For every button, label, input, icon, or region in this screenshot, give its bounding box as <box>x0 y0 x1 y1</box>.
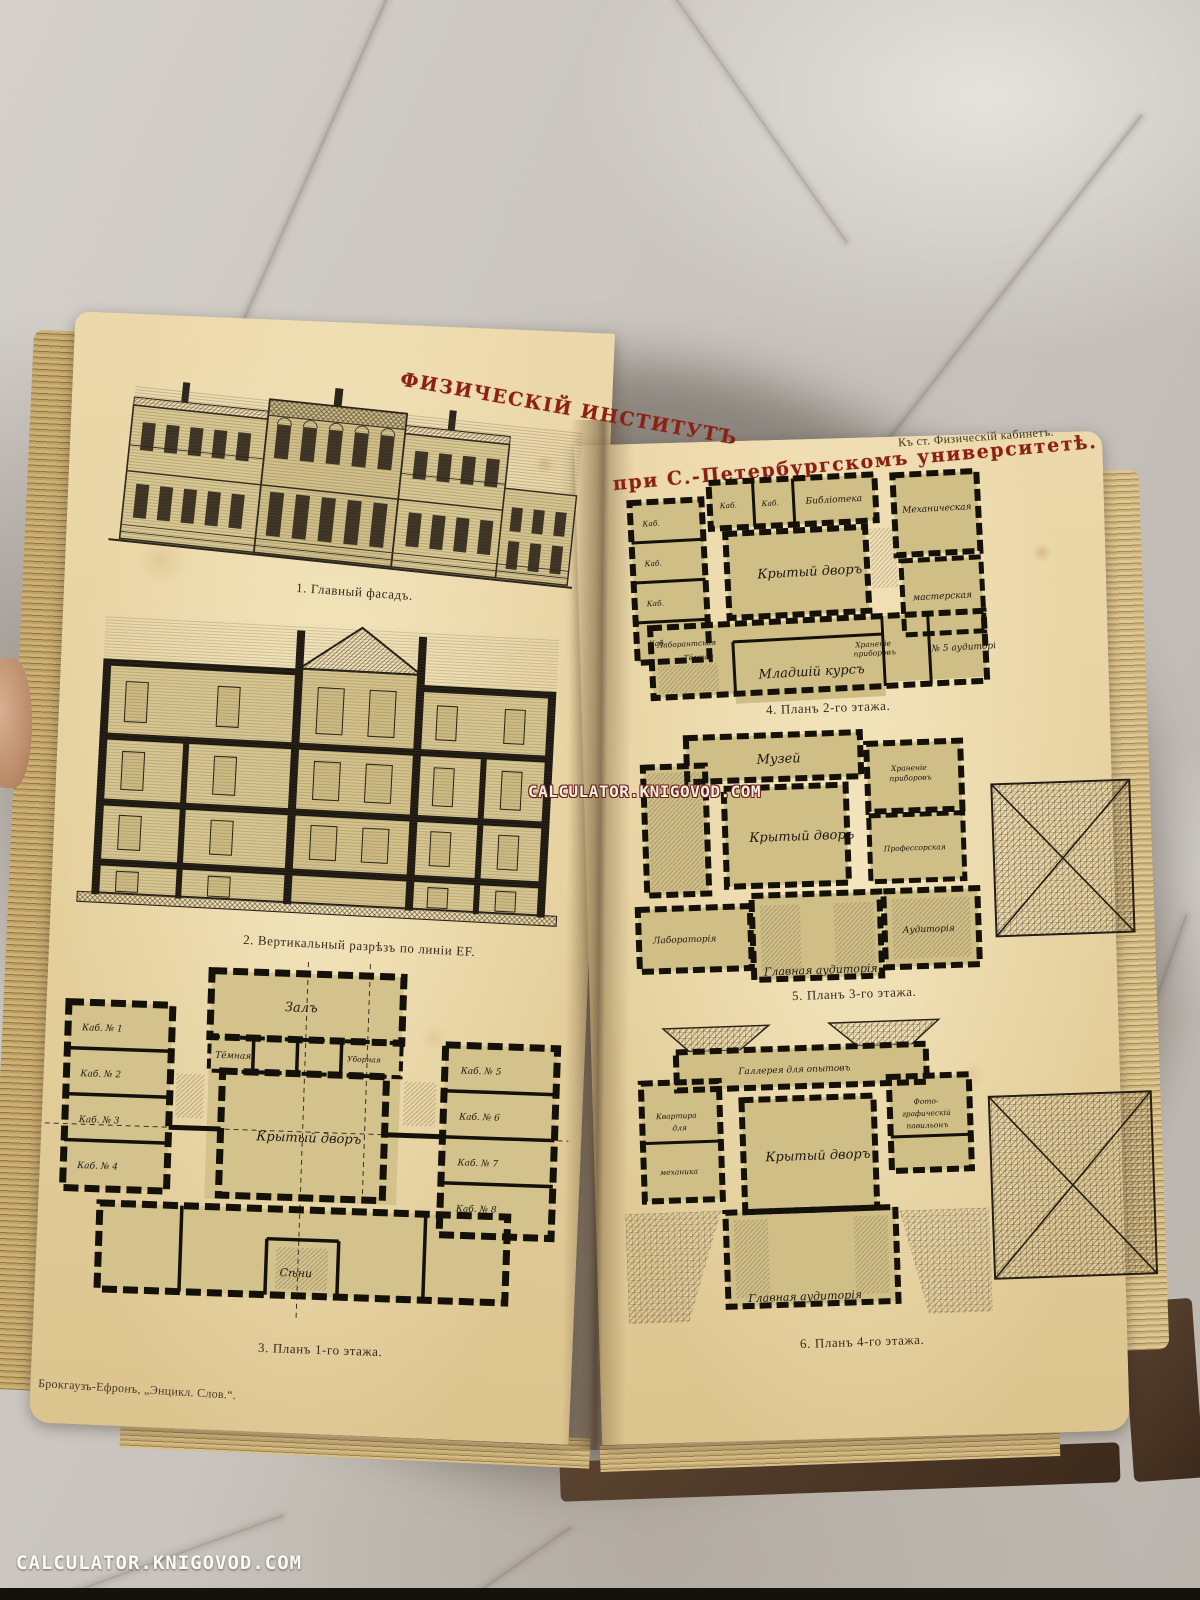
plan1-room-label: Каб. № 5 <box>460 1065 502 1077</box>
figure-vertical-section <box>74 600 575 942</box>
plan3-storage-label: приборовъ <box>889 773 932 783</box>
plan3-auditorium-label: Аудиторія <box>902 924 955 936</box>
plan1-entry-label: Сѣни <box>279 1266 312 1280</box>
plan1-room-label: Каб. № 4 <box>76 1160 118 1172</box>
photo-bottom-edge <box>0 1588 1200 1600</box>
plan4-photo-label: Фото- <box>913 1096 939 1106</box>
photo-of-open-book: ФИЗИЧЕСКІЙ ИНСТИТУТЪ <box>0 0 1200 1600</box>
figure-plan-floor4: Галлерея для опытовъ Квартира для механи… <box>619 1016 993 1330</box>
plan3-laboratory-label: Лабораторія <box>652 933 717 946</box>
plan4-photo-label: графическій <box>902 1108 951 1119</box>
plan4-apartment-label: механика <box>660 1167 698 1177</box>
plan2-cab-label: Каб. <box>643 559 662 569</box>
plan1-room-label: Каб. № 7 <box>456 1157 498 1169</box>
plan4-photo-label: павильонъ <box>906 1120 948 1130</box>
figure-plan-floor3: Музей Крытый дворъ Храненіе приборовъ Пр… <box>627 716 988 995</box>
figure-plan-floor2: Каб. Каб. Библіотека Каб. Каб. Каб. Каб.… <box>614 452 998 718</box>
figure-plan-floor1: Залъ Крытый дворъ Каб. № 1 Каб. № 2 Каб.… <box>38 953 575 1344</box>
plan1-hall-label: Залъ <box>285 1000 319 1016</box>
plan3-storage-label: Храненіе <box>890 763 928 773</box>
plan1-room-label: Каб. № 8 <box>455 1203 497 1215</box>
plan2-cab-label: Каб. <box>760 498 779 508</box>
plan1-wc-label: Уборная <box>347 1054 381 1064</box>
plan1-room-label: Каб. № 6 <box>458 1111 500 1123</box>
plan1-room-label: Каб. № 2 <box>79 1068 121 1080</box>
plan2-cab-label: Каб. <box>641 519 660 529</box>
marble-vein <box>674 0 848 243</box>
roof-plan-block <box>985 1087 1162 1288</box>
plan1-dark-label: Тёмная <box>215 1051 251 1062</box>
roof-plan-block <box>987 776 1139 946</box>
plan1-room-label: Каб. № 1 <box>81 1022 123 1034</box>
watermark-corner: CALCULATOR.KNIGOVOD.COM <box>16 1552 302 1574</box>
plan4-apartment-label: для <box>672 1123 687 1133</box>
plan4-apartment-label: Квартира <box>655 1111 697 1121</box>
plan1-room-label: Каб. № 3 <box>78 1114 120 1126</box>
plan2-cab-label: Каб. <box>718 501 737 511</box>
watermark-center: CALCULATOR.KNIGOVOD.COM <box>528 782 761 801</box>
plan2-dark-label: Тёмная <box>683 652 714 663</box>
plan2-cab-label: Каб. <box>646 598 665 608</box>
plan3-museum-label: Музей <box>755 751 801 768</box>
